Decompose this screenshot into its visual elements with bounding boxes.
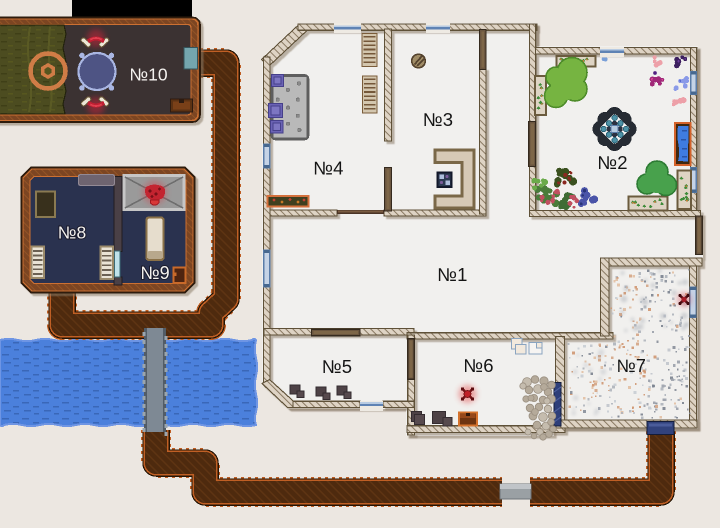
svg-text:№8: №8: [58, 222, 87, 242]
svg-text:№3: №3: [423, 109, 453, 130]
svg-text:№9: №9: [140, 263, 169, 283]
svg-text:№5: №5: [322, 356, 352, 377]
svg-text:№10: №10: [129, 65, 168, 85]
svg-text:№4: №4: [313, 158, 343, 179]
svg-text:№1: №1: [437, 264, 467, 285]
svg-text:№6: №6: [463, 355, 493, 376]
svg-text:№7: №7: [617, 356, 646, 376]
svg-text:№2: №2: [597, 152, 627, 173]
